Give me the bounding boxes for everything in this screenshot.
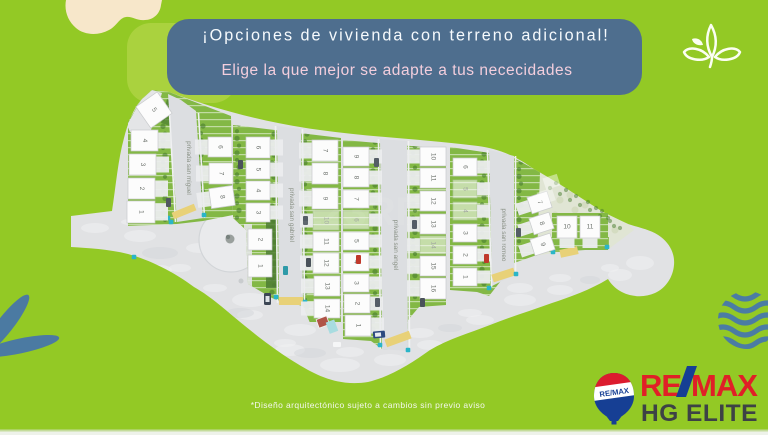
svg-text:1: 1 [462,275,469,279]
svg-text:2: 2 [354,302,361,306]
svg-text:10: 10 [563,224,571,231]
svg-text:123RF: 123RF [300,190,420,234]
svg-text:4: 4 [255,189,262,193]
svg-text:privada san gabriel: privada san gabriel [288,188,295,242]
svg-text:1: 1 [257,264,264,268]
svg-text:¡Opciones de vivienda con terr: ¡Opciones de vivienda con terreno adicio… [202,27,609,45]
svg-text:RE: RE [640,368,681,403]
svg-text:14: 14 [324,305,331,313]
svg-text:6: 6 [462,165,469,169]
svg-text:5: 5 [353,239,360,243]
svg-text:11: 11 [430,175,437,182]
svg-text:3: 3 [255,211,262,215]
svg-text:privada san miguel: privada san miguel [185,141,192,195]
svg-text:1: 1 [355,324,362,328]
svg-text:4: 4 [141,139,148,143]
svg-text:12: 12 [323,259,330,267]
svg-text:2: 2 [138,187,145,191]
svg-text:11: 11 [587,224,594,231]
svg-text:14: 14 [430,241,437,249]
svg-text:16: 16 [430,285,437,293]
svg-text:2: 2 [462,253,469,257]
svg-text:MAX: MAX [691,368,758,403]
svg-text:Elige la que mejor se adapte a: Elige la que mejor se adapte a tus necec… [221,62,572,79]
svg-text:11: 11 [323,238,330,245]
svg-text:2: 2 [257,238,264,242]
svg-text:*Diseño arquitectónico sujeto: *Diseño arquitectónico sujeto a cambios … [251,400,486,410]
svg-text:3: 3 [462,231,469,235]
svg-text:5: 5 [462,187,469,191]
svg-text:privada san romeo: privada san romeo [500,209,507,262]
svg-text:10: 10 [430,153,437,161]
svg-text:9: 9 [353,155,360,159]
svg-text:6: 6 [217,145,224,149]
svg-text:13: 13 [430,220,437,228]
svg-text:13: 13 [324,282,331,290]
svg-text:3: 3 [139,163,146,167]
svg-text:6: 6 [255,146,262,150]
svg-text:8: 8 [353,176,360,180]
svg-text:12: 12 [430,197,437,205]
svg-text:15: 15 [430,262,437,270]
svg-text:HG ELITE: HG ELITE [641,400,758,427]
svg-text:1: 1 [138,210,145,214]
svg-text:7: 7 [218,172,225,176]
svg-text:5: 5 [255,168,262,172]
svg-text:8: 8 [322,172,329,176]
svg-text:7: 7 [322,149,329,153]
svg-text:3: 3 [353,281,360,285]
svg-text:4: 4 [462,209,469,213]
